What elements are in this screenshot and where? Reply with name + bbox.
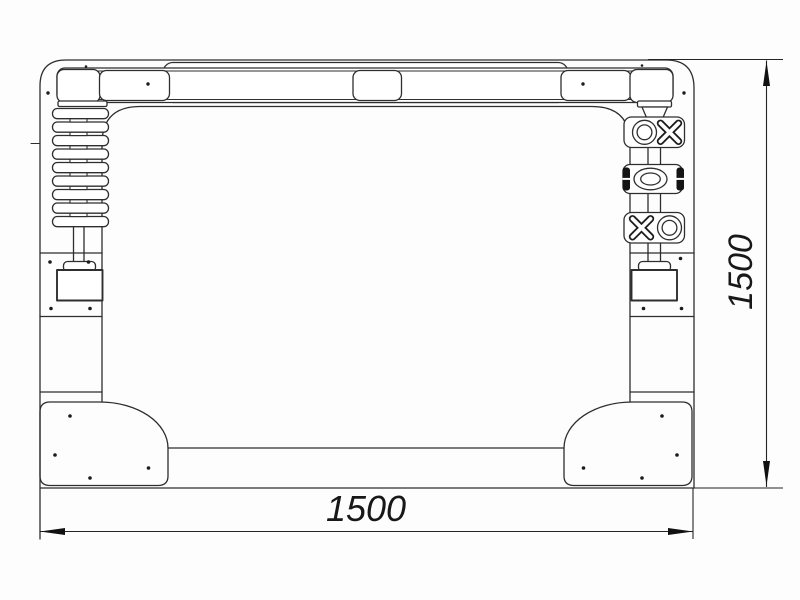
bolt-hole-dot [88,476,92,480]
rail-right-plate [561,71,631,101]
dimension-width: 1500 [40,488,693,539]
bolt-hole-dot [641,64,644,67]
bolt-hole-dot [682,91,685,94]
rail-left-plate [100,71,170,101]
spring-slat [53,163,109,173]
bolt-hole-dot [146,82,149,85]
bolt-hole-dot [581,82,584,85]
clamp-left-slit [623,178,631,180]
technical-drawing-page: 1500 1500 [0,0,800,600]
spring-slat [53,149,109,159]
dimension-height-label: 1500 [722,234,760,310]
tensioner-assembly [623,101,685,301]
bolt-hole-dot [49,307,53,311]
bolt-hole-dot [87,260,91,264]
spring-spacer [70,119,87,122]
bolt-hole-dot [48,260,52,264]
spring-spacer [70,200,87,203]
rail-middle-plate [353,71,402,101]
spring-slat [53,203,109,213]
bolt-hole-dot [679,257,683,261]
corner-gusset-right [564,402,692,486]
arrowhead-down [763,461,770,486]
spring-rod [74,227,85,263]
rail-right-end-cap [630,70,673,103]
spring-slat [53,122,109,132]
frame-outline [31,60,694,539]
arrowhead-up [763,61,770,86]
frame-drawing: 1500 1500 [0,0,800,600]
spring-spacer [70,173,87,176]
bolt-hole-dot [53,453,57,457]
bolt-hole-dot [68,414,72,418]
gusset-outline [40,402,168,486]
bolt-hole-dot [147,466,151,470]
tensioner-top-flange [638,101,672,107]
arrowhead-left [40,528,65,535]
roller-block-bottom [624,213,685,244]
roller-block-middle [623,165,685,194]
rail-left-end-cap [57,70,100,103]
spring-slats [53,109,109,227]
arrowhead-right [668,528,693,535]
frame-outer-edge [40,60,694,539]
spring-assembly [53,101,109,301]
bolt-hole-dot [46,91,49,94]
frame-inner-opening [102,107,630,403]
anchor-block-left [57,270,103,301]
anchor-block-right [632,270,678,301]
spring-slat [53,109,109,119]
spring-spacer [70,159,87,162]
bolt-hole-dot [85,65,88,68]
spring-slat [53,176,109,186]
bolt-hole-dot [660,414,664,418]
tensioner-taper [642,107,668,118]
bolt-hole-dot [680,307,684,311]
spring-top-flange [58,101,107,107]
bolt-hole-dot [88,307,92,311]
top-rail [57,64,673,102]
dimension-width-label: 1500 [326,488,406,529]
spring-slat [53,217,109,227]
bolt-hole-dot [582,466,586,470]
spring-spacer [70,213,87,216]
roller-block-top [624,117,685,148]
bolt-hole-dot [675,453,679,457]
gusset-outline [564,402,692,486]
spring-spacer [70,132,87,135]
spring-slat [53,136,109,146]
clamp-right-slit [677,178,685,180]
spring-spacer [70,146,87,149]
spring-slat [53,190,109,200]
bolt-hole-dot [640,476,644,480]
bolt-hole-dot [642,307,646,311]
spring-spacer [70,186,87,189]
corner-gusset-left [40,402,168,486]
